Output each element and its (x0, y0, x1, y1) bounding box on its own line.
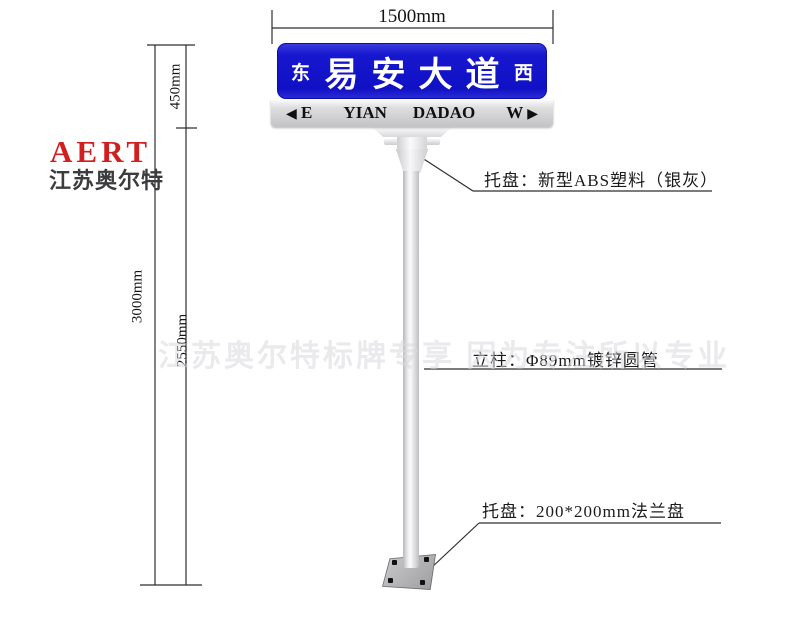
bracket-cone (394, 149, 430, 173)
band-left-group: ◀ E (286, 103, 312, 123)
sign-panel: 东 易安大道 西 (277, 43, 547, 99)
pinyin-word-2: DADAO (413, 103, 475, 123)
dim-label-total-height: 3000mm (130, 252, 147, 342)
annotation-base: 托盘：200*200mm法兰盘 (482, 497, 685, 522)
street-sign-spec-diagram: 1500mm 450mm 3000mm 2550mm AERT 江苏奥尔特 东 … (0, 0, 800, 640)
band-right-group: W ▶ (506, 103, 538, 123)
band-pinyin: YIAN DADAO (343, 103, 475, 123)
direction-west-label: 西 (514, 58, 533, 85)
brand-name: 江苏奥尔特 (49, 163, 164, 195)
left-arrow-icon: ◀ (286, 106, 297, 122)
sign-underside-plate (372, 127, 452, 137)
band-right-letter: W (506, 103, 523, 122)
pinyin-word-1: YIAN (343, 103, 386, 123)
flange-bolt (392, 560, 397, 565)
road-name: 易安大道 (325, 47, 513, 96)
annotation-bracket: 托盘：新型ABS塑料（银灰） (484, 166, 718, 191)
dim-label-pole-height: 2550mm (175, 296, 192, 386)
flange-bolt (420, 580, 425, 585)
watermark: 江苏奥尔特标牌专享 因为专注所以专业 (158, 331, 768, 375)
leader-base (430, 523, 479, 569)
sign-pinyin-band: ◀ E YIAN DADAO W ▶ (271, 99, 553, 127)
direction-east-label: 东 (291, 58, 310, 85)
band-left-letter: E (301, 103, 312, 122)
annotation-pole: 立柱：Φ89mm镀锌圆管 (472, 346, 659, 371)
flange-bolt (388, 578, 393, 583)
flange-bolt (424, 557, 429, 562)
dim-label-width: 1500mm (357, 6, 467, 28)
dim-label-panel-height: 450mm (168, 42, 185, 132)
sign-pole (403, 171, 419, 568)
right-arrow-icon: ▶ (527, 106, 538, 122)
